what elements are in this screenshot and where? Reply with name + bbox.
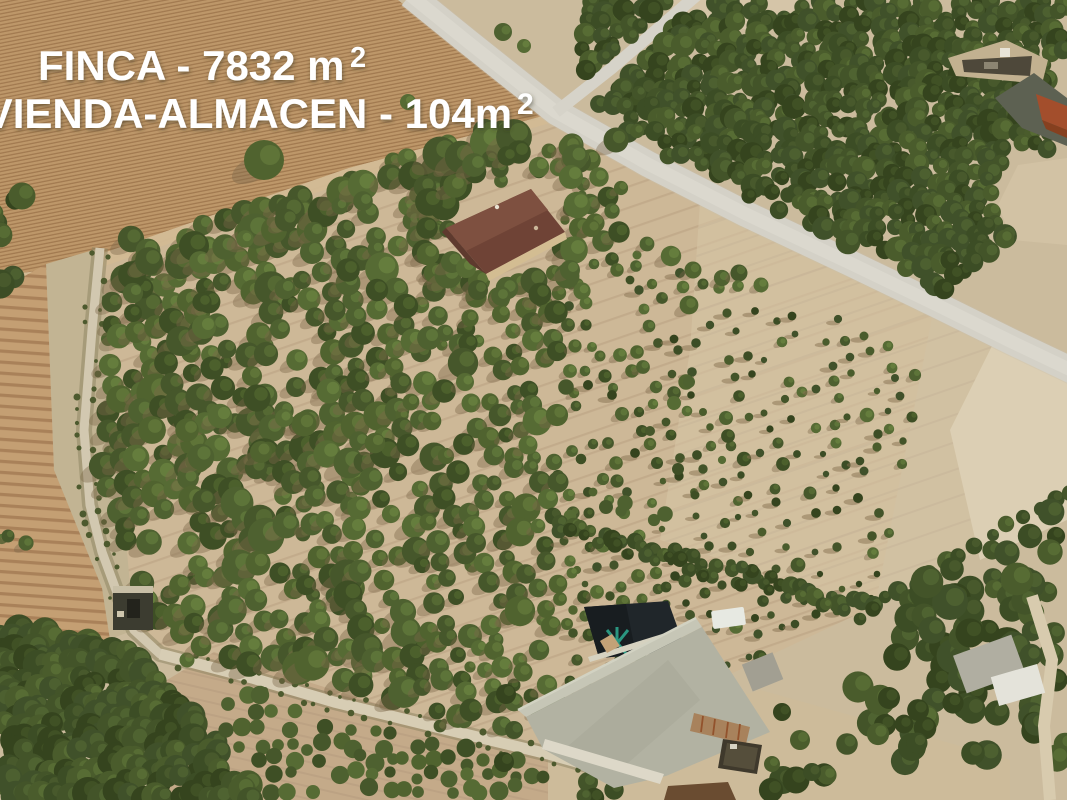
svg-text:VIVIENDA-ALMACEN - 104m: VIVIENDA-ALMACEN - 104m — [0, 90, 512, 137]
svg-text:2: 2 — [350, 42, 366, 74]
svg-text:2: 2 — [517, 88, 534, 121]
svg-text:FINCA - 7832 m: FINCA - 7832 m — [38, 42, 345, 89]
